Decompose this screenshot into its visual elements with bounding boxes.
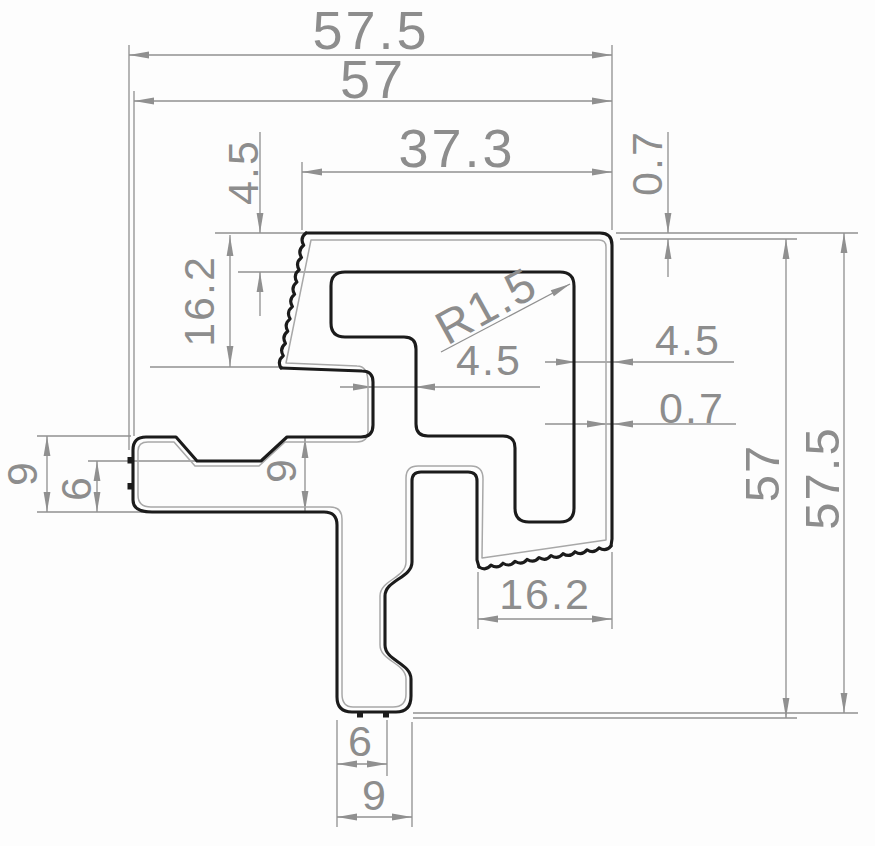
- dim-leg-bottom-width: 9: [362, 771, 388, 819]
- dim-overall-height-outer: 57.5: [795, 426, 849, 529]
- dim-top-face-width: 37.3: [398, 118, 515, 178]
- dim-overall-width: 57: [340, 49, 406, 109]
- dim-arm-mid-height: 9: [257, 457, 305, 483]
- dim-overall-height: 57: [735, 444, 789, 503]
- gasket-nub: [128, 457, 134, 464]
- dim-top-wall-thickness: 4.5: [219, 139, 267, 205]
- technical-drawing-page: 57.5 57 37.3 4.5 16.2 0.7 R1.5 4.5 4.5 0…: [0, 0, 875, 846]
- dim-leg-bottom-inner-width: 6: [348, 717, 374, 765]
- profile-body-edge: [133, 368, 479, 712]
- serration-top-left: [279, 233, 306, 368]
- dim-arm-lip-height: 6: [52, 475, 100, 501]
- gasket-nub: [128, 483, 134, 490]
- profile-nubs: [128, 457, 390, 718]
- dim-right-skin-thickness: 0.7: [659, 384, 725, 432]
- extrusion-profile-drawing: 57.5 57 37.3 4.5 16.2 0.7 R1.5 4.5 4.5 0…: [0, 0, 875, 846]
- gasket-nub: [383, 712, 389, 718]
- dimension-labels: 57.5 57 37.3 4.5 16.2 0.7 R1.5 4.5 4.5 0…: [0, 0, 849, 819]
- dim-right-wall-thickness: 4.5: [655, 316, 721, 364]
- dim-top-skin-thickness: 0.7: [623, 130, 671, 196]
- dim-center-web-thickness: 4.5: [456, 336, 522, 384]
- dim-left-grip-height: 16.2: [175, 255, 223, 347]
- dim-bottom-grip-width: 16.2: [499, 570, 591, 618]
- profile-top-right-edge: [306, 233, 612, 546]
- dim-arm-height: 9: [0, 460, 46, 486]
